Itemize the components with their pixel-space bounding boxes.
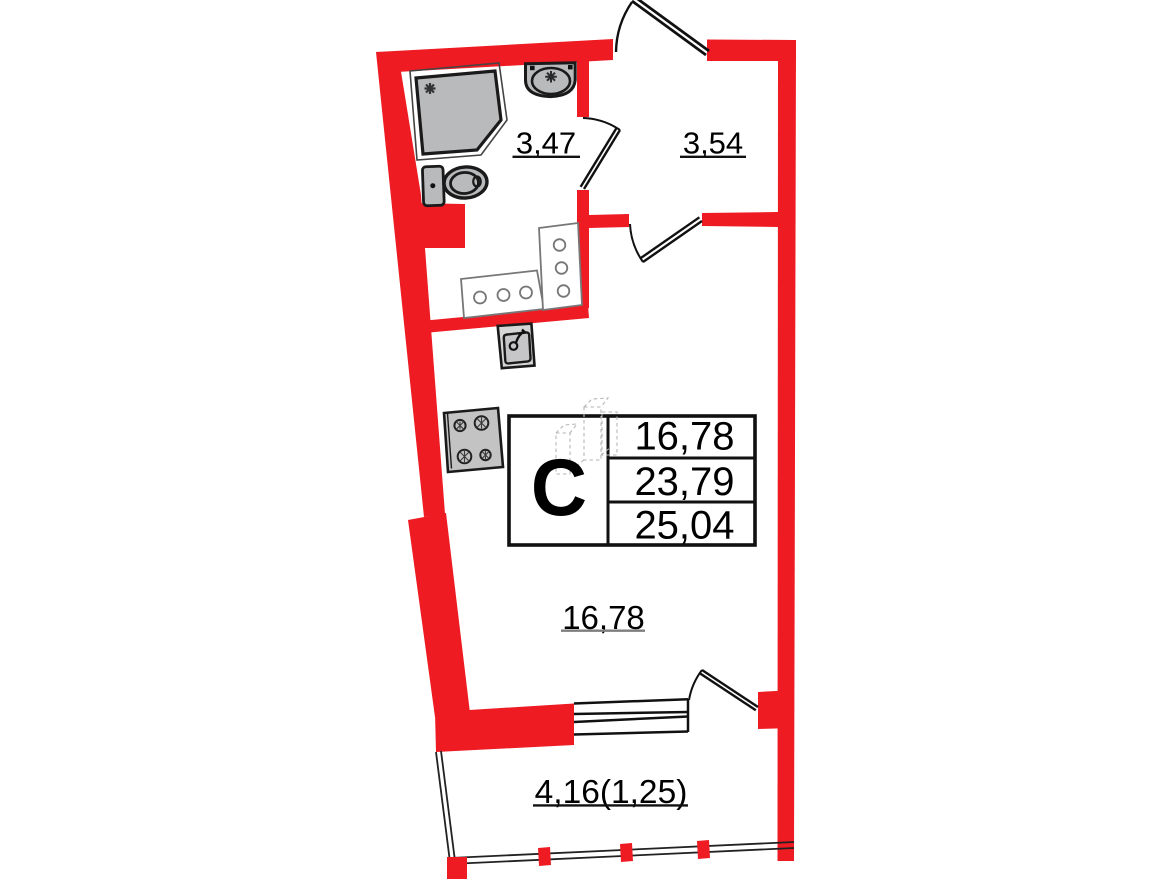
svg-text:16,78: 16,78 (634, 415, 734, 459)
svg-text:23,79: 23,79 (634, 460, 734, 504)
svg-text:C: C (531, 442, 587, 533)
svg-text:3,47: 3,47 (516, 126, 576, 161)
svg-text:3,54: 3,54 (683, 126, 743, 161)
svg-text:25,04: 25,04 (634, 504, 734, 548)
